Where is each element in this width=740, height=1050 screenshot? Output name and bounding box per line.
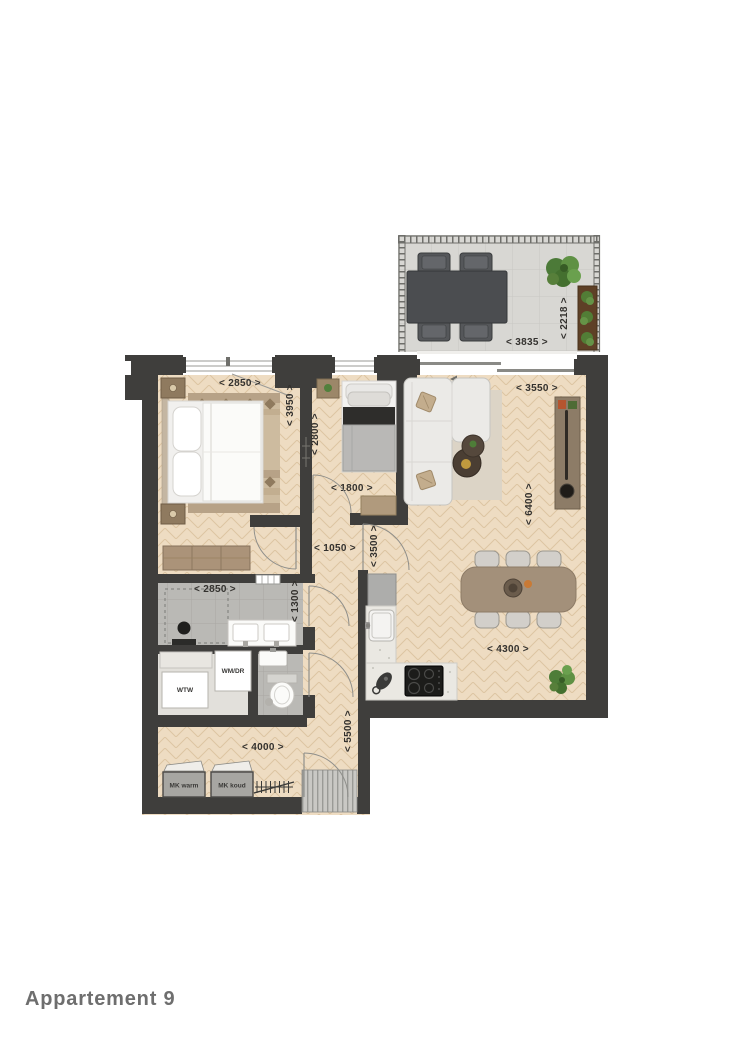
meter-closet-cold: MK koud <box>211 761 253 797</box>
dim-bathroom-depth: < 1300 > <box>290 580 301 622</box>
kitchen-sink <box>365 610 394 641</box>
balcony-threshold <box>417 351 577 354</box>
dining-set <box>461 551 576 628</box>
bathroom-radiator <box>256 575 280 584</box>
nightstand <box>161 504 185 524</box>
dim-entry-hall-width: < 4000 > <box>242 742 284 753</box>
study-rug <box>361 496 396 515</box>
balcony-chair <box>418 253 450 273</box>
fridge <box>368 574 396 606</box>
sideboard <box>555 397 580 509</box>
meter-cold-label: MK koud <box>218 783 245 790</box>
dim-bedroom-width: < 2850 > <box>219 378 261 389</box>
balcony-plant <box>546 256 581 287</box>
dresser <box>163 546 250 570</box>
dim-living-width: < 3550 > <box>516 383 558 394</box>
apartment-title: Appartement 9 <box>25 988 175 1011</box>
heat-recovery-label: WTW <box>177 687 194 694</box>
dim-balcony-width: < 3835 > <box>506 337 548 348</box>
balcony-chair <box>460 253 492 273</box>
balcony-chair <box>418 321 450 341</box>
toilet-basin <box>259 648 287 666</box>
cooktop <box>405 666 443 696</box>
nightstand <box>161 378 185 398</box>
dim-entry-hall-depth: < 5500 > <box>343 710 354 752</box>
study-nightstand <box>317 379 339 398</box>
washer-dryer-label: WM/DR <box>222 668 245 675</box>
floorplan-drawing: < 3835 > < 2218 > <box>0 0 740 1050</box>
balcony: < 3835 > < 2218 > <box>398 235 600 354</box>
floorplan-page: < 3835 > < 2218 > <box>0 0 740 1050</box>
balcony-planter <box>578 286 597 350</box>
dim-living-depth: < 6400 > <box>524 483 535 525</box>
double-washbasin <box>228 620 296 647</box>
doormat <box>302 770 357 812</box>
balcony-chair <box>460 321 492 341</box>
single-bed <box>342 381 396 472</box>
utility-shelf <box>160 652 212 668</box>
dim-hall-depth: < 3500 > <box>369 525 380 567</box>
double-bed <box>162 399 263 505</box>
dim-balcony-depth: < 2218 > <box>559 297 570 339</box>
dim-dining-width: < 4300 > <box>487 644 529 655</box>
dim-study-width: < 1800 > <box>331 483 373 494</box>
dim-bathroom-width: < 2850 > <box>194 584 236 595</box>
heat-recovery-unit: WTW <box>162 672 208 708</box>
meter-warm-label: MK warm <box>170 783 199 790</box>
washer-dryer-unit: WM/DR <box>215 651 251 691</box>
dim-bedroom-depth: < 3950 > <box>285 384 296 426</box>
dim-hall-width: < 1050 > <box>314 543 356 554</box>
study-window <box>332 357 377 373</box>
balcony-table <box>407 271 507 323</box>
wall-niche <box>125 361 131 375</box>
meter-closet-warm: MK warm <box>163 761 205 797</box>
dim-study-depth: < 2800 > <box>310 413 321 455</box>
